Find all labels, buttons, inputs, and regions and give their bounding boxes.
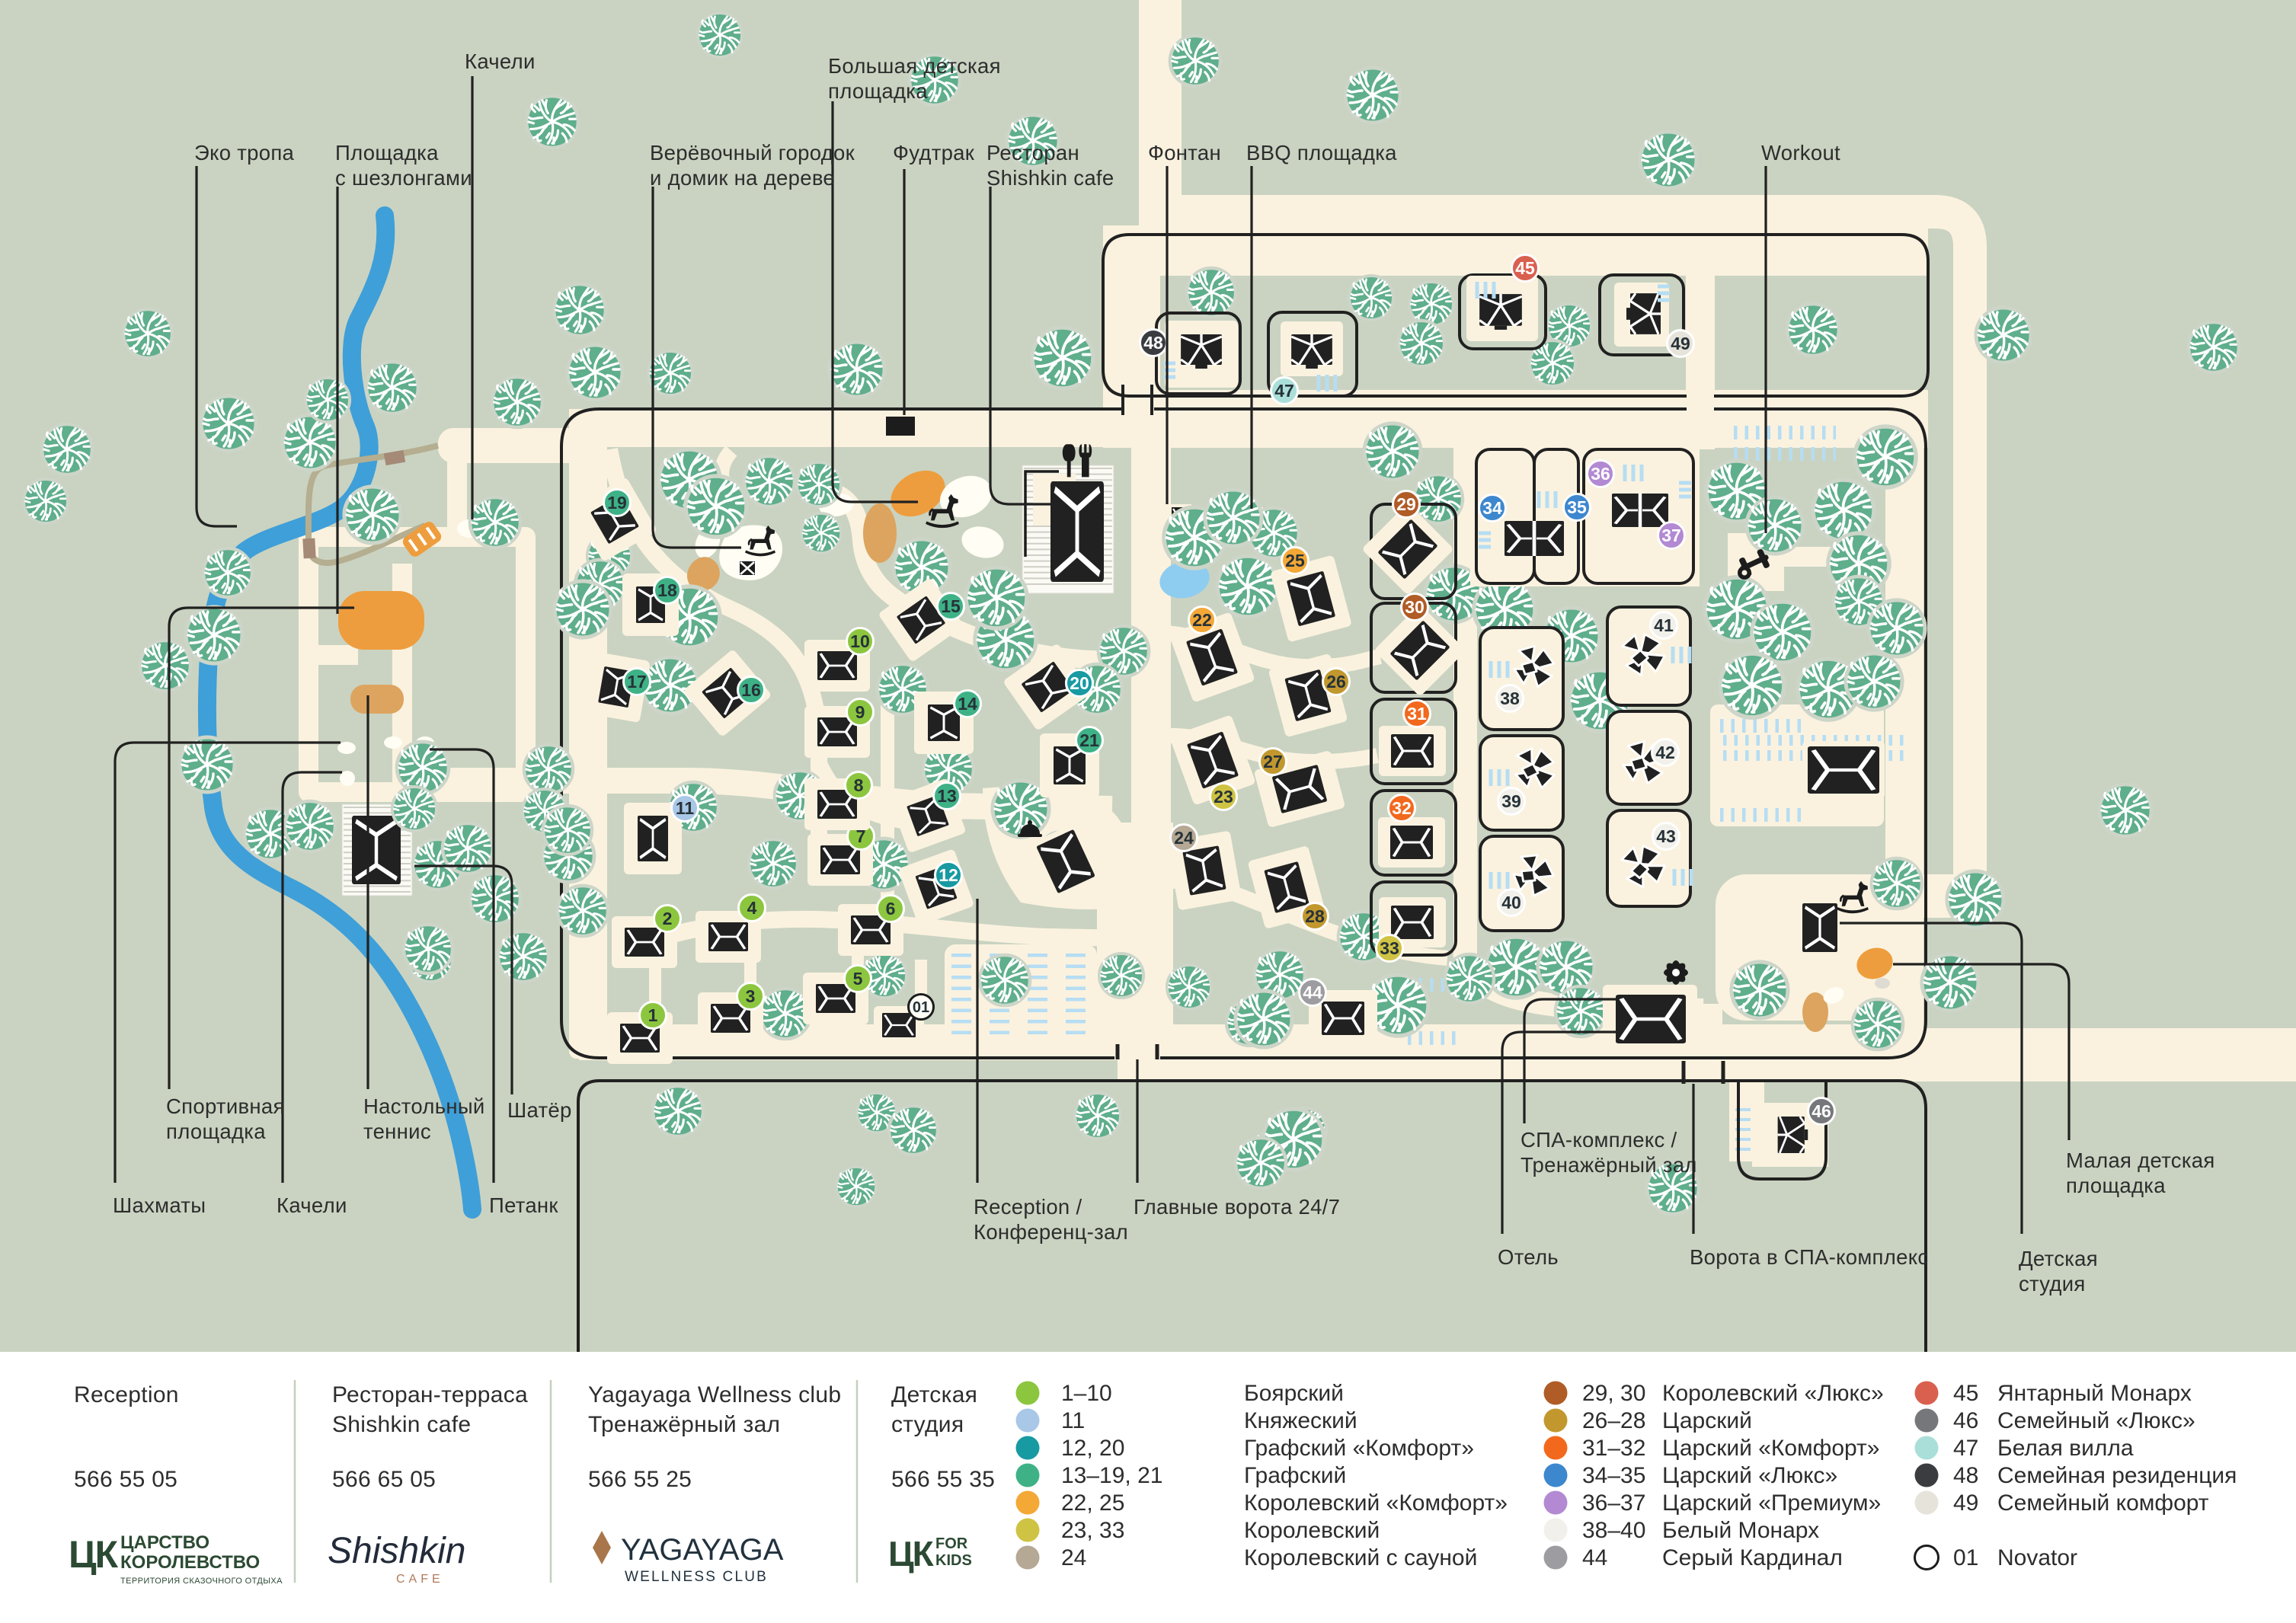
svg-text:9: 9 bbox=[855, 702, 865, 722]
svg-text:6: 6 bbox=[886, 899, 896, 919]
svg-text:37: 37 bbox=[1661, 526, 1681, 545]
svg-text:41: 41 bbox=[1654, 615, 1674, 635]
svg-text:33: 33 bbox=[1380, 938, 1399, 958]
svg-text:KIDS: KIDS bbox=[935, 1552, 972, 1569]
svg-text:Белый Монарх: Белый Монарх bbox=[1662, 1518, 1819, 1543]
svg-text:ЦК: ЦК bbox=[888, 1534, 935, 1573]
svg-text:Серый Кардинал: Серый Кардинал bbox=[1662, 1545, 1843, 1570]
svg-text:ТЕРРИТОРИЯ СКАЗОЧНОГО ОТДЫХА: ТЕРРИТОРИЯ СКАЗОЧНОГО ОТДЫХА bbox=[120, 1577, 283, 1586]
svg-text:31: 31 bbox=[1407, 704, 1427, 724]
svg-text:Семейный комфорт: Семейный комфорт bbox=[1997, 1490, 2209, 1516]
svg-text:46: 46 bbox=[1953, 1408, 1978, 1433]
svg-text:Царский «Премиум»: Царский «Премиум» bbox=[1662, 1490, 1881, 1516]
svg-text:14: 14 bbox=[958, 694, 977, 714]
svg-text:20: 20 bbox=[1070, 673, 1089, 693]
svg-text:24: 24 bbox=[1061, 1545, 1086, 1570]
svg-text:10: 10 bbox=[850, 631, 870, 651]
svg-text:49: 49 bbox=[1953, 1490, 1978, 1516]
svg-text:Царский «Люкс»: Царский «Люкс» bbox=[1662, 1463, 1837, 1488]
svg-text:КОРОЛЕВСТВО: КОРОЛЕВСТВО bbox=[120, 1552, 260, 1573]
svg-text:Отель: Отель bbox=[1498, 1245, 1559, 1269]
svg-text:48: 48 bbox=[1143, 333, 1163, 353]
svg-text:566 65 05: 566 65 05 bbox=[332, 1467, 436, 1492]
svg-text:47: 47 bbox=[1953, 1436, 1978, 1461]
svg-text:38–40: 38–40 bbox=[1582, 1518, 1645, 1543]
svg-text:BBQ площадка: BBQ площадка bbox=[1246, 141, 1397, 165]
svg-text:Shishkin: Shishkin bbox=[328, 1531, 465, 1571]
svg-text:566 55 05: 566 55 05 bbox=[74, 1467, 177, 1492]
svg-text:40: 40 bbox=[1501, 893, 1521, 912]
svg-text:4: 4 bbox=[747, 898, 757, 918]
svg-text:Шахматы: Шахматы bbox=[113, 1193, 206, 1217]
svg-text:Фудтрак: Фудтрак bbox=[893, 141, 975, 165]
svg-text:Белая вилла: Белая вилла bbox=[1997, 1436, 2134, 1461]
svg-text:566 55 35: 566 55 35 bbox=[891, 1467, 995, 1492]
svg-text:24: 24 bbox=[1174, 828, 1194, 848]
svg-text:Семейный «Люкс»: Семейный «Люкс» bbox=[1997, 1408, 2195, 1433]
svg-text:3: 3 bbox=[746, 986, 756, 1006]
svg-text:42: 42 bbox=[1655, 743, 1675, 762]
svg-text:13: 13 bbox=[937, 786, 957, 806]
svg-text:32: 32 bbox=[1392, 798, 1412, 818]
svg-text:22, 25: 22, 25 bbox=[1061, 1490, 1124, 1516]
svg-text:Царский: Царский bbox=[1662, 1408, 1752, 1433]
svg-text:45: 45 bbox=[1953, 1381, 1978, 1406]
svg-text:36–37: 36–37 bbox=[1582, 1490, 1645, 1516]
svg-text:25: 25 bbox=[1285, 551, 1305, 570]
svg-text:29: 29 bbox=[1396, 494, 1416, 514]
svg-text:Графский: Графский bbox=[1244, 1463, 1346, 1488]
svg-text:Качели: Качели bbox=[277, 1193, 347, 1217]
svg-text:19: 19 bbox=[607, 493, 627, 513]
svg-text:28: 28 bbox=[1305, 906, 1325, 926]
svg-text:44: 44 bbox=[1582, 1545, 1607, 1570]
svg-text:Графский «Комфорт»: Графский «Комфорт» bbox=[1244, 1436, 1474, 1461]
svg-text:FOR: FOR bbox=[935, 1535, 968, 1552]
svg-text:ЦАРСТВО: ЦАРСТВО bbox=[120, 1532, 209, 1553]
svg-text:YAGAYAGA: YAGAYAGA bbox=[621, 1533, 784, 1567]
svg-text:1–10: 1–10 bbox=[1061, 1381, 1112, 1406]
svg-text:23, 33: 23, 33 bbox=[1061, 1518, 1124, 1543]
svg-text:Novator: Novator bbox=[1997, 1545, 2077, 1570]
svg-text:Королевский «Люкс»: Королевский «Люкс» bbox=[1662, 1381, 1884, 1406]
svg-text:CAFE: CAFE bbox=[396, 1573, 444, 1586]
svg-text:27: 27 bbox=[1263, 752, 1283, 772]
svg-text:Петанк: Петанк bbox=[489, 1193, 558, 1217]
svg-text:12: 12 bbox=[939, 865, 958, 885]
svg-text:30: 30 bbox=[1405, 597, 1425, 617]
svg-text:49: 49 bbox=[1671, 334, 1690, 353]
svg-text:47: 47 bbox=[1274, 381, 1294, 401]
svg-text:11: 11 bbox=[676, 798, 695, 818]
svg-text:44: 44 bbox=[1303, 982, 1322, 1002]
svg-text:Reception: Reception bbox=[74, 1382, 179, 1407]
svg-text:Боярский: Боярский bbox=[1244, 1381, 1344, 1406]
svg-text:16: 16 bbox=[741, 680, 761, 700]
svg-text:01: 01 bbox=[1953, 1545, 1978, 1570]
svg-text:43: 43 bbox=[1656, 826, 1676, 846]
svg-text:Княжеский: Княжеский bbox=[1244, 1408, 1357, 1433]
svg-text:31–32: 31–32 bbox=[1582, 1436, 1645, 1461]
svg-text:ЦК: ЦК bbox=[69, 1533, 119, 1576]
svg-text:2: 2 bbox=[663, 909, 673, 928]
svg-text:Эко тропа: Эко тропа bbox=[194, 141, 295, 165]
svg-text:Семейная резиденция: Семейная резиденция bbox=[1997, 1463, 2237, 1488]
svg-text:17: 17 bbox=[627, 672, 647, 692]
svg-text:22: 22 bbox=[1192, 610, 1212, 630]
svg-text:Королевский с сауной: Королевский с сауной bbox=[1244, 1545, 1477, 1570]
svg-text:45: 45 bbox=[1515, 258, 1535, 278]
svg-text:12, 20: 12, 20 bbox=[1061, 1436, 1124, 1461]
svg-text:46: 46 bbox=[1812, 1101, 1831, 1121]
svg-text:WELLNESS CLUB: WELLNESS CLUB bbox=[625, 1569, 768, 1585]
svg-text:26: 26 bbox=[1326, 672, 1346, 692]
svg-text:Главные ворота 24/7: Главные ворота 24/7 bbox=[1134, 1195, 1340, 1219]
svg-text:Ворота в СПА-комплекс: Ворота в СПА-комплекс bbox=[1690, 1245, 1928, 1269]
svg-text:Workout: Workout bbox=[1761, 141, 1840, 165]
svg-text:1: 1 bbox=[648, 1005, 658, 1025]
svg-text:21: 21 bbox=[1079, 730, 1099, 750]
svg-text:Королевский: Королевский bbox=[1244, 1518, 1380, 1543]
svg-text:36: 36 bbox=[1591, 464, 1610, 484]
svg-text:35: 35 bbox=[1567, 497, 1587, 517]
svg-text:34: 34 bbox=[1482, 498, 1502, 518]
svg-text:13–19, 21: 13–19, 21 bbox=[1061, 1463, 1162, 1488]
svg-text:15: 15 bbox=[941, 596, 961, 616]
svg-text:Королевский «Комфорт»: Королевский «Комфорт» bbox=[1244, 1490, 1508, 1516]
svg-text:38: 38 bbox=[1500, 688, 1520, 708]
svg-text:Шатёр: Шатёр bbox=[507, 1098, 572, 1122]
svg-text:48: 48 bbox=[1953, 1463, 1978, 1488]
svg-text:34–35: 34–35 bbox=[1582, 1463, 1645, 1488]
svg-text:Качели: Качели bbox=[465, 50, 536, 73]
svg-text:8: 8 bbox=[854, 775, 864, 795]
svg-text:26–28: 26–28 bbox=[1582, 1408, 1645, 1433]
svg-text:Янтарный Монарх: Янтарный Монарх bbox=[1997, 1381, 2192, 1406]
svg-text:01: 01 bbox=[913, 999, 929, 1016]
svg-text:11: 11 bbox=[1061, 1408, 1085, 1433]
svg-text:29, 30: 29, 30 bbox=[1582, 1381, 1645, 1406]
svg-text:566 55 25: 566 55 25 bbox=[588, 1467, 692, 1492]
svg-text:5: 5 bbox=[853, 969, 863, 989]
svg-text:Царский «Комфорт»: Царский «Комфорт» bbox=[1662, 1436, 1879, 1461]
svg-text:23: 23 bbox=[1214, 787, 1233, 807]
svg-text:Фонтан: Фонтан bbox=[1148, 141, 1221, 165]
svg-text:39: 39 bbox=[1501, 791, 1521, 811]
svg-text:18: 18 bbox=[657, 580, 677, 600]
